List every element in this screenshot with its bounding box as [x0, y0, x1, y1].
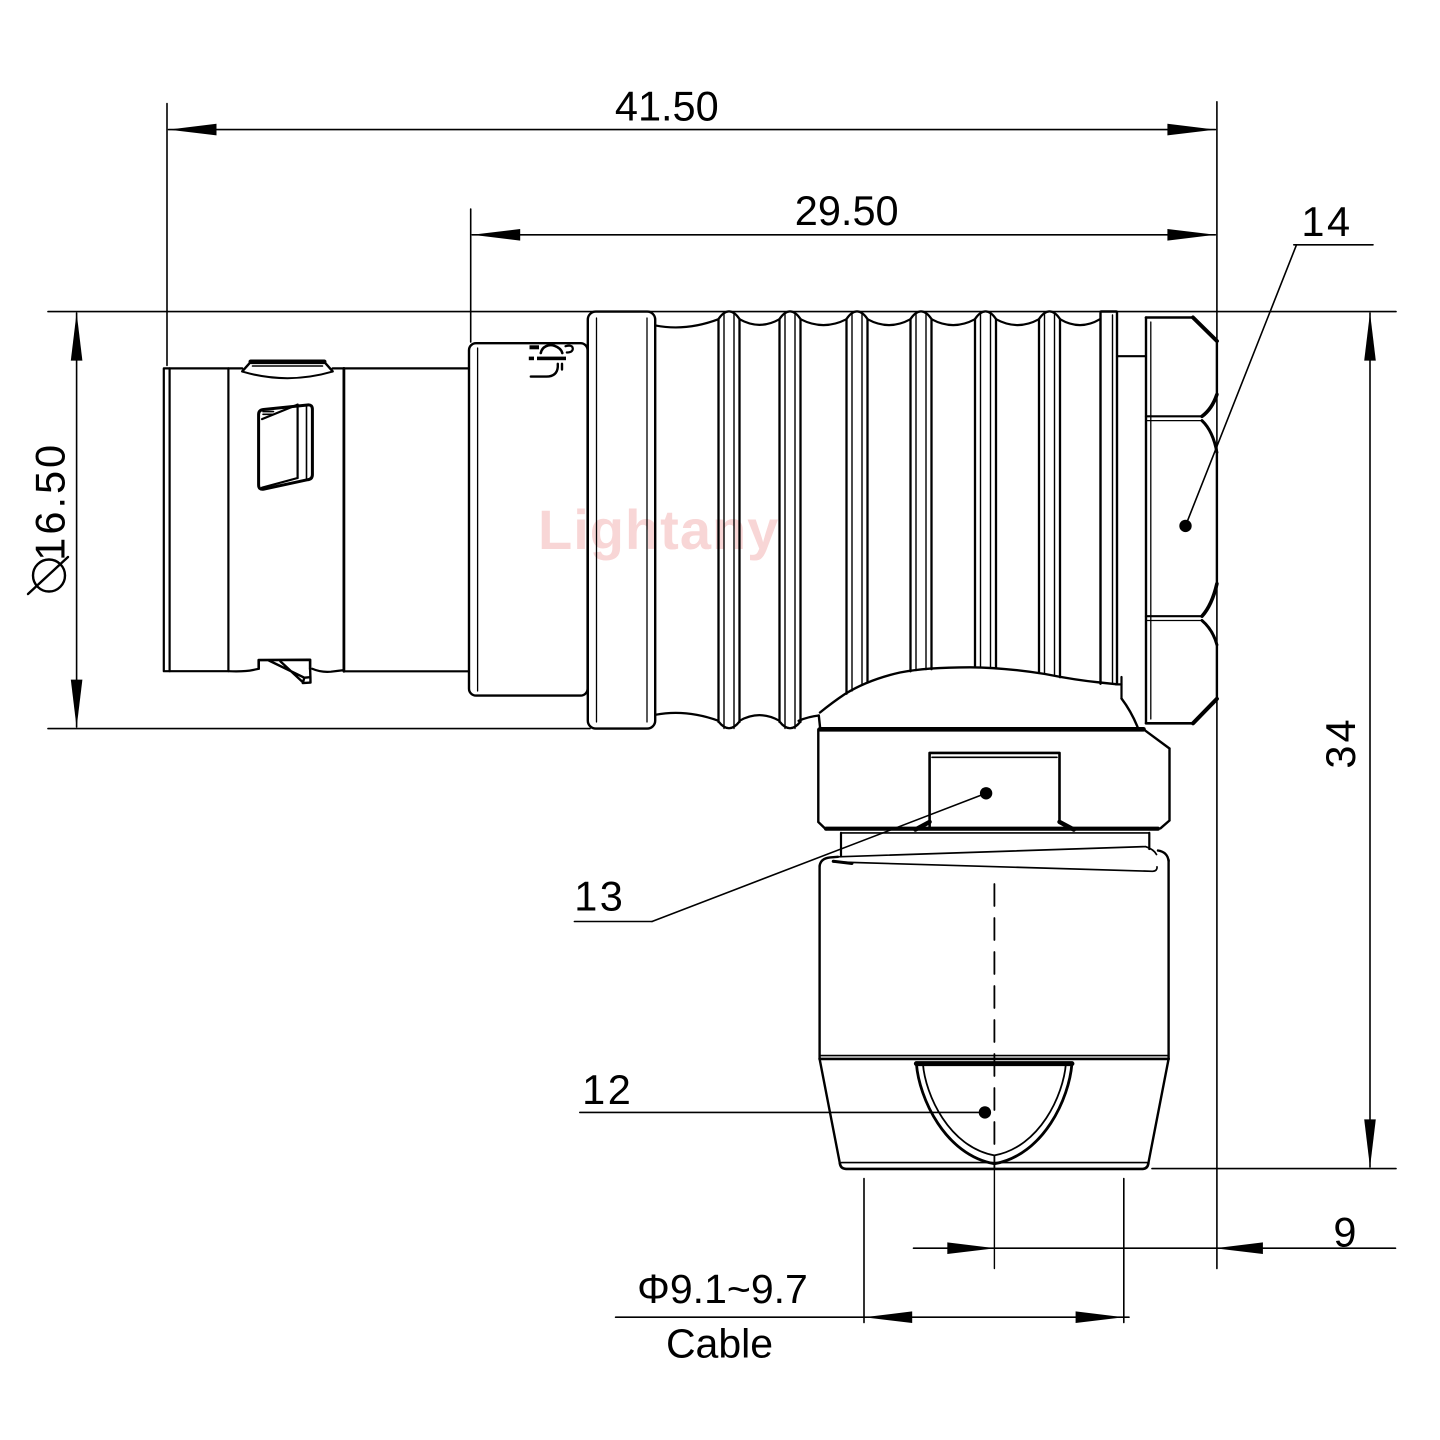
svg-text:9: 9 — [1333, 1208, 1356, 1255]
svg-text:34: 34 — [1317, 716, 1364, 768]
svg-text:41.50: 41.50 — [615, 83, 719, 130]
svg-text:Cable: Cable — [666, 1321, 773, 1367]
svg-text:14: 14 — [1301, 198, 1352, 245]
svg-text:13: 13 — [574, 873, 625, 920]
svg-text:29.50: 29.50 — [795, 187, 899, 234]
svg-text:Φ9.1~9.7: Φ9.1~9.7 — [637, 1266, 808, 1312]
svg-text:Lightany: Lightany — [538, 498, 779, 561]
svg-text:16.50: 16.50 — [27, 442, 74, 561]
svg-text:12: 12 — [582, 1066, 633, 1113]
